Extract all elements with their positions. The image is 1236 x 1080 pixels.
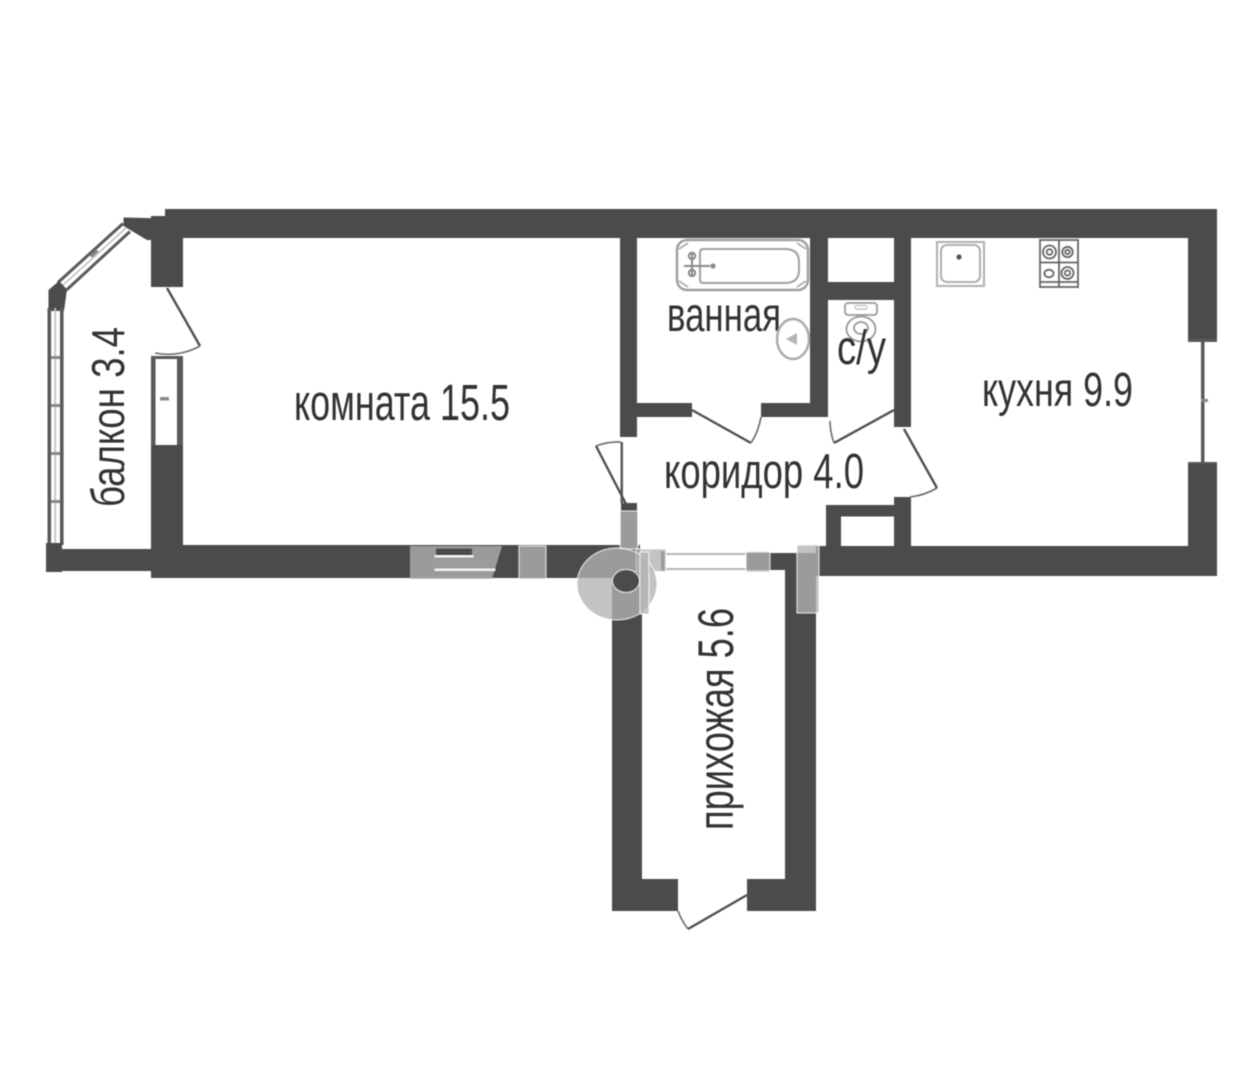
svg-text:комната 15.5: комната 15.5 [294,374,510,431]
svg-text:прихожая 5.6: прихожая 5.6 [688,608,744,830]
svg-text:кухня 9.9: кухня 9.9 [982,364,1133,417]
svg-text:ванная: ванная [667,289,781,342]
svg-text:коридор 4.0: коридор 4.0 [664,445,864,499]
svg-text:балкон 3.4: балкон 3.4 [82,327,134,507]
svg-text:с/у: с/у [837,322,886,375]
